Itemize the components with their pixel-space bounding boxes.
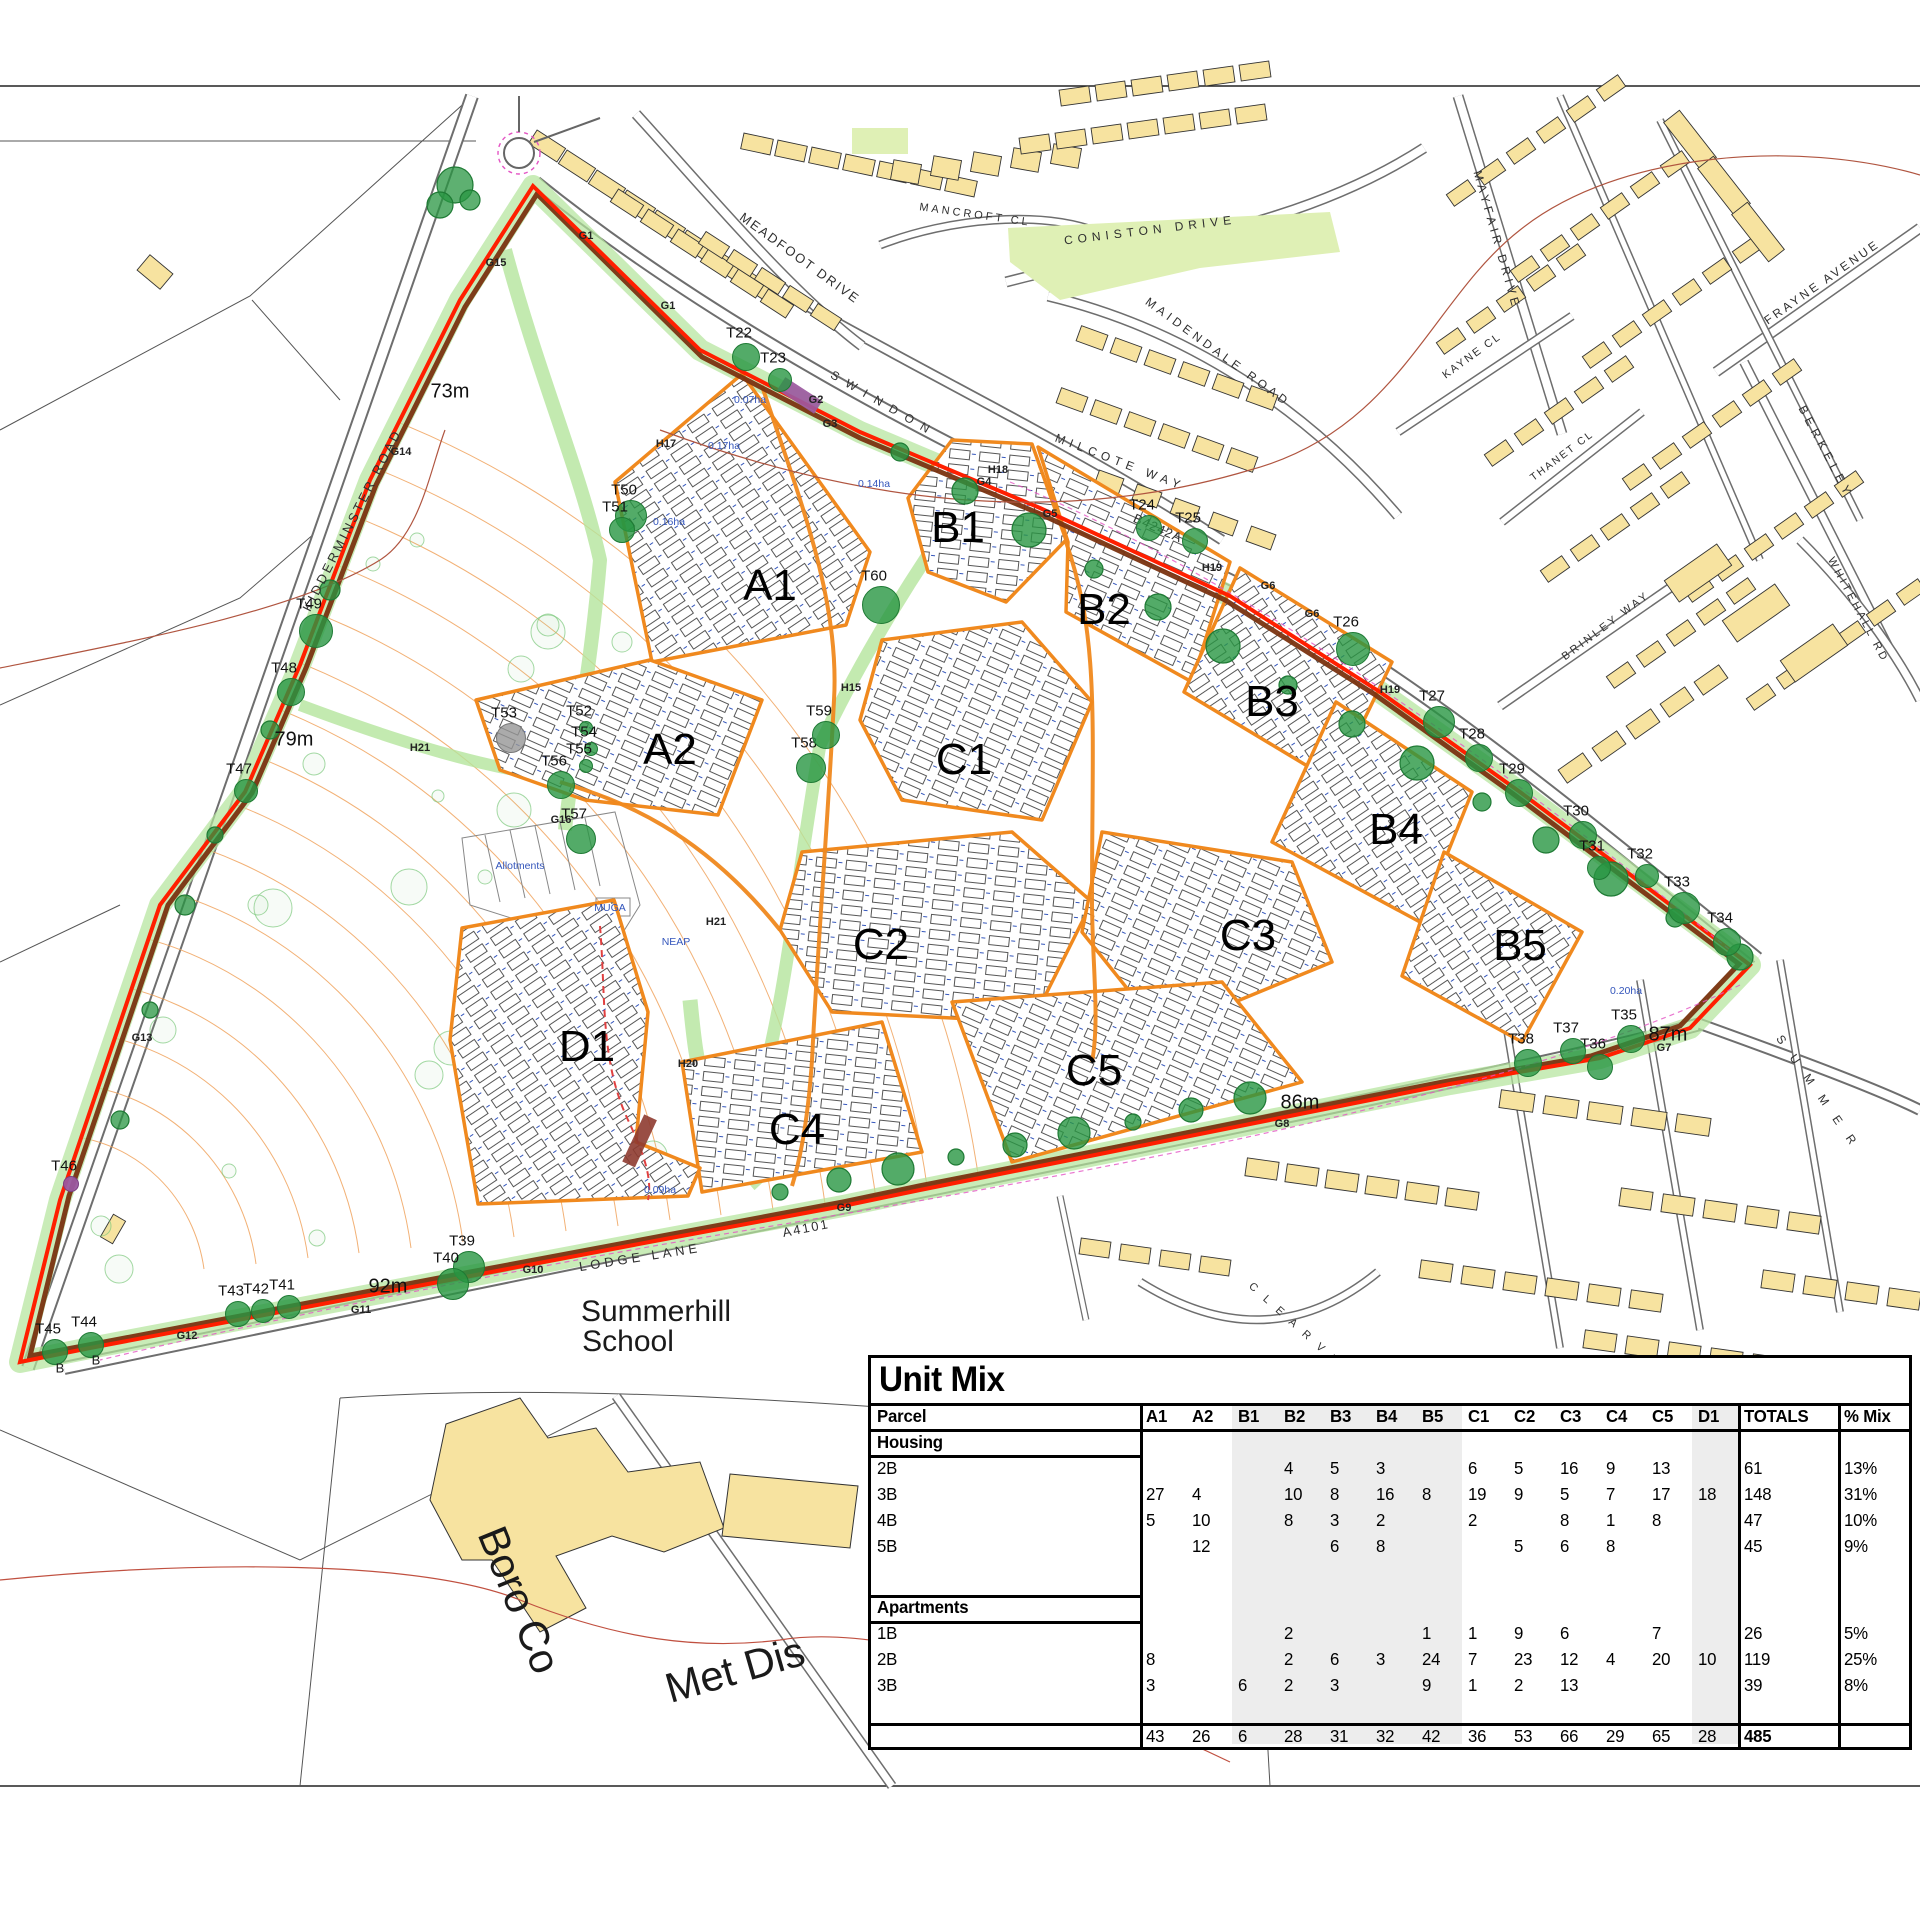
- cell-housing-4b-B3: 3: [1330, 1508, 1339, 1532]
- cell-housing-2b-C2: 5: [1514, 1456, 1523, 1480]
- col-header-mix: % Mix: [1844, 1404, 1891, 1428]
- cell-housing-3b-B4: 16: [1376, 1482, 1394, 1506]
- cell-housing-3b-total: 148: [1744, 1482, 1771, 1506]
- col-header-B2: B2: [1284, 1404, 1305, 1428]
- site-plan-page: MEADFOOT DRIVEMANCROFT CLCONISTON DRIVEM…: [0, 0, 1920, 1920]
- cell-apartments-2b-B5: 24: [1422, 1647, 1440, 1671]
- cell-totals-C5: 65: [1652, 1724, 1670, 1748]
- cell-housing-4b-B4: 2: [1376, 1508, 1385, 1532]
- col-header-B4: B4: [1376, 1404, 1397, 1428]
- cell-housing-2b-C1: 6: [1468, 1456, 1477, 1480]
- table-rule: [1140, 1403, 1143, 1747]
- col-header-C2: C2: [1514, 1404, 1535, 1428]
- col-header-C3: C3: [1560, 1404, 1581, 1428]
- cell-housing-5b-total: 45: [1744, 1534, 1762, 1558]
- cell-housing-3b-C5: 17: [1652, 1482, 1670, 1506]
- cell-apartments-3b-B2: 2: [1284, 1673, 1293, 1697]
- cell-housing-3b-mix: 31%: [1844, 1482, 1877, 1506]
- table-rule: [1838, 1403, 1841, 1747]
- section-header-apartments: Apartments: [877, 1595, 1127, 1619]
- cell-totals-D1: 28: [1698, 1724, 1716, 1748]
- cell-housing-5b-A2: 12: [1192, 1534, 1210, 1558]
- cell-housing-3b-C3: 5: [1560, 1482, 1569, 1506]
- cell-housing-5b-C4: 8: [1606, 1534, 1615, 1558]
- cell-apartments-1b-B2: 2: [1284, 1621, 1293, 1645]
- cell-housing-2b-mix: 13%: [1844, 1456, 1877, 1480]
- cell-housing-3b-D1: 18: [1698, 1482, 1716, 1506]
- cell-apartments-2b-C4: 4: [1606, 1647, 1615, 1671]
- col-header-totals: TOTALS: [1744, 1404, 1809, 1428]
- cell-apartments-2b-B3: 6: [1330, 1647, 1339, 1671]
- row-label-housing-3b: 3B: [877, 1482, 1127, 1506]
- cell-housing-4b-total: 47: [1744, 1508, 1762, 1532]
- col-header-A1: A1: [1146, 1404, 1167, 1428]
- col-header-A2: A2: [1192, 1404, 1213, 1428]
- cell-housing-3b-C1: 19: [1468, 1482, 1486, 1506]
- cell-apartments-2b-total: 119: [1744, 1647, 1770, 1671]
- cell-totals-C2: 53: [1514, 1724, 1532, 1748]
- parcel-C1: [860, 622, 1092, 820]
- cell-housing-2b-total: 61: [1744, 1456, 1762, 1480]
- col-header-C4: C4: [1606, 1404, 1627, 1428]
- cell-apartments-3b-B1: 6: [1238, 1673, 1247, 1697]
- cell-apartments-2b-D1: 10: [1698, 1647, 1716, 1671]
- col-header-D1: D1: [1698, 1404, 1719, 1428]
- row-label-apartments-3b: 3B: [877, 1673, 1127, 1697]
- parcel-D1: [450, 900, 700, 1204]
- cell-housing-3b-B5: 8: [1422, 1482, 1431, 1506]
- cell-housing-3b-B2: 10: [1284, 1482, 1302, 1506]
- cell-totals-B1: 6: [1238, 1724, 1247, 1748]
- table-rule: [1738, 1403, 1741, 1747]
- col-header-B5: B5: [1422, 1404, 1443, 1428]
- cell-apartments-1b-total: 26: [1744, 1621, 1762, 1645]
- cell-apartments-1b-C2: 9: [1514, 1621, 1523, 1645]
- cell-housing-4b-C4: 1: [1606, 1508, 1615, 1532]
- cell-housing-2b-B4: 3: [1376, 1456, 1385, 1480]
- cell-housing-4b-mix: 10%: [1844, 1508, 1877, 1532]
- cell-apartments-3b-mix: 8%: [1844, 1673, 1868, 1697]
- cell-housing-3b-C2: 9: [1514, 1482, 1523, 1506]
- cell-housing-2b-C4: 9: [1606, 1456, 1615, 1480]
- shaded-d1-column: [1692, 1403, 1738, 1744]
- cell-housing-3b-A1: 27: [1146, 1482, 1164, 1506]
- cell-housing-2b-B3: 5: [1330, 1456, 1339, 1480]
- cell-housing-3b-C4: 7: [1606, 1482, 1615, 1506]
- cell-apartments-3b-C1: 1: [1468, 1673, 1477, 1697]
- col-header-C5: C5: [1652, 1404, 1673, 1428]
- cell-housing-3b-B3: 8: [1330, 1482, 1339, 1506]
- parcel-A2: [476, 660, 762, 815]
- cell-housing-3b-A2: 4: [1192, 1482, 1201, 1506]
- cell-apartments-2b-B2: 2: [1284, 1647, 1293, 1671]
- cell-housing-4b-C5: 8: [1652, 1508, 1661, 1532]
- cell-apartments-1b-mix: 5%: [1844, 1621, 1868, 1645]
- cell-apartments-3b-B3: 3: [1330, 1673, 1339, 1697]
- cell-housing-2b-C3: 16: [1560, 1456, 1578, 1480]
- cell-totals-C3: 66: [1560, 1724, 1578, 1748]
- cell-housing-5b-B4: 8: [1376, 1534, 1385, 1558]
- cell-apartments-2b-C2: 23: [1514, 1647, 1532, 1671]
- cell-totals-C4: 29: [1606, 1724, 1624, 1748]
- cell-apartments-3b-C3: 13: [1560, 1673, 1578, 1697]
- cell-totals-A1: 43: [1146, 1724, 1164, 1748]
- row-label-housing-4b: 4B: [877, 1508, 1127, 1532]
- cell-apartments-2b-A1: 8: [1146, 1647, 1155, 1671]
- cell-apartments-2b-C3: 12: [1560, 1647, 1578, 1671]
- section-header-housing: Housing: [877, 1430, 1127, 1454]
- cell-housing-4b-B2: 8: [1284, 1508, 1293, 1532]
- cell-housing-5b-B3: 6: [1330, 1534, 1339, 1558]
- cell-totals-C1: 36: [1468, 1724, 1486, 1748]
- cell-housing-5b-C3: 6: [1560, 1534, 1569, 1558]
- cell-totals-B2: 28: [1284, 1724, 1302, 1748]
- cell-housing-4b-A2: 10: [1192, 1508, 1210, 1532]
- row-label-apartments-1b: 1B: [877, 1621, 1127, 1645]
- cell-housing-4b-C1: 2: [1468, 1508, 1477, 1532]
- cell-totals-B4: 32: [1376, 1724, 1394, 1748]
- cell-housing-4b-C3: 8: [1560, 1508, 1569, 1532]
- cell-apartments-3b-B5: 9: [1422, 1673, 1431, 1697]
- col-header-parcel: Parcel: [877, 1404, 1127, 1428]
- cell-apartments-3b-A1: 3: [1146, 1673, 1155, 1697]
- cell-apartments-1b-C1: 1: [1468, 1621, 1477, 1645]
- row-label-apartments-2b: 2B: [877, 1647, 1127, 1671]
- cell-apartments-2b-C1: 7: [1468, 1647, 1477, 1671]
- col-header-B1: B1: [1238, 1404, 1259, 1428]
- table-title: Unit Mix: [879, 1360, 1005, 1400]
- cell-totals-total: 485: [1744, 1724, 1771, 1748]
- cell-housing-5b-C2: 5: [1514, 1534, 1523, 1558]
- cell-apartments-1b-B5: 1: [1422, 1621, 1431, 1645]
- cell-housing-2b-C5: 13: [1652, 1456, 1670, 1480]
- cell-housing-2b-B2: 4: [1284, 1456, 1293, 1480]
- cell-apartments-1b-C5: 7: [1652, 1621, 1661, 1645]
- green-corridors: [20, 186, 1750, 1362]
- row-label-housing-5b: 5B: [877, 1534, 1127, 1558]
- unit-mix-table: Unit MixParcelA1A2B1B2B3B4B5C1C2C3C4C5D1…: [868, 1355, 1912, 1750]
- col-header-B3: B3: [1330, 1404, 1351, 1428]
- cell-totals-B3: 31: [1330, 1724, 1348, 1748]
- cell-housing-4b-A1: 5: [1146, 1508, 1155, 1532]
- cell-apartments-3b-total: 39: [1744, 1673, 1762, 1697]
- cell-apartments-2b-mix: 25%: [1844, 1647, 1877, 1671]
- col-header-C1: C1: [1468, 1404, 1489, 1428]
- cell-apartments-2b-B4: 3: [1376, 1647, 1385, 1671]
- row-label-housing-2b: 2B: [877, 1456, 1127, 1480]
- cell-totals-A2: 26: [1192, 1724, 1210, 1748]
- cell-totals-B5: 42: [1422, 1724, 1440, 1748]
- cell-housing-5b-mix: 9%: [1844, 1534, 1868, 1558]
- cell-apartments-2b-C5: 20: [1652, 1647, 1670, 1671]
- cell-apartments-1b-C3: 6: [1560, 1621, 1569, 1645]
- cell-apartments-3b-C2: 2: [1514, 1673, 1523, 1697]
